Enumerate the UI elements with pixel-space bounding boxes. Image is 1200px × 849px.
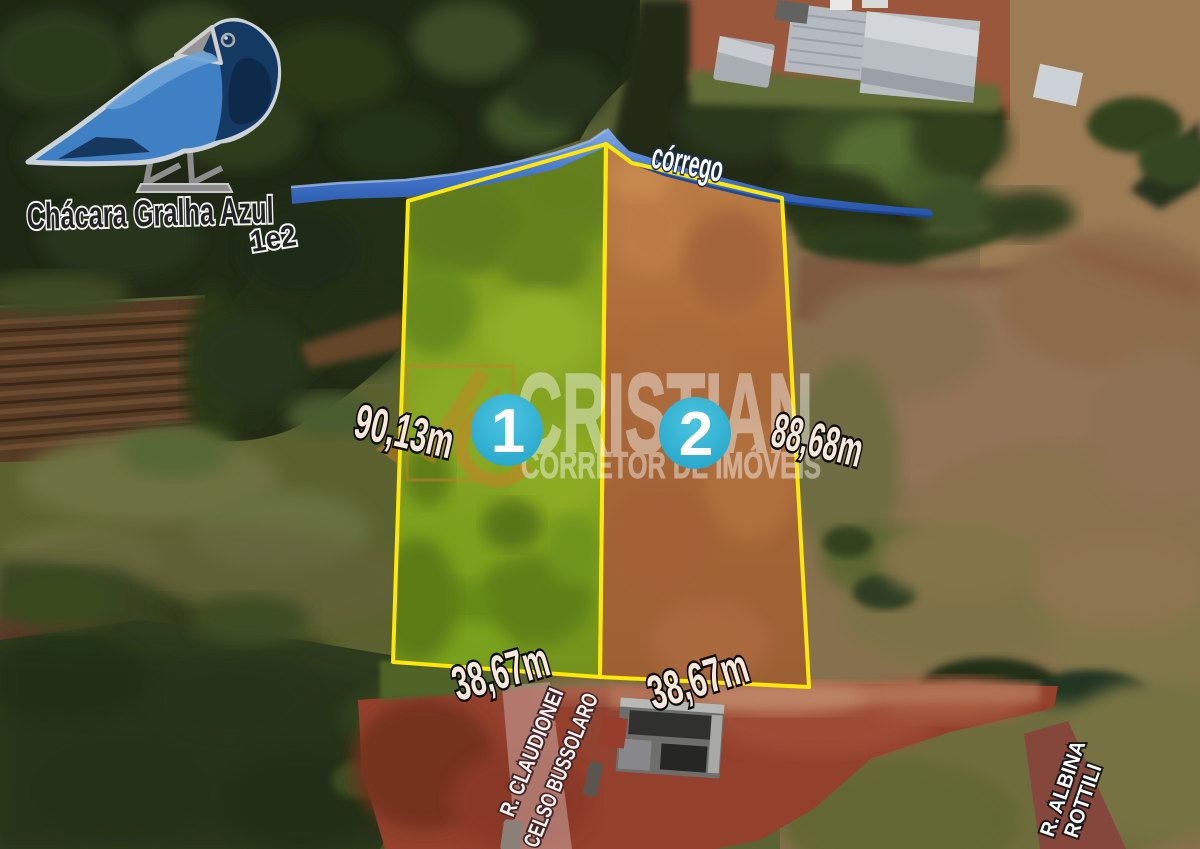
svg-text:1: 1	[491, 397, 525, 466]
svg-text:2: 2	[679, 400, 713, 469]
svg-text:Chácara Gralha Azul: Chácara Gralha Azul	[26, 190, 274, 237]
